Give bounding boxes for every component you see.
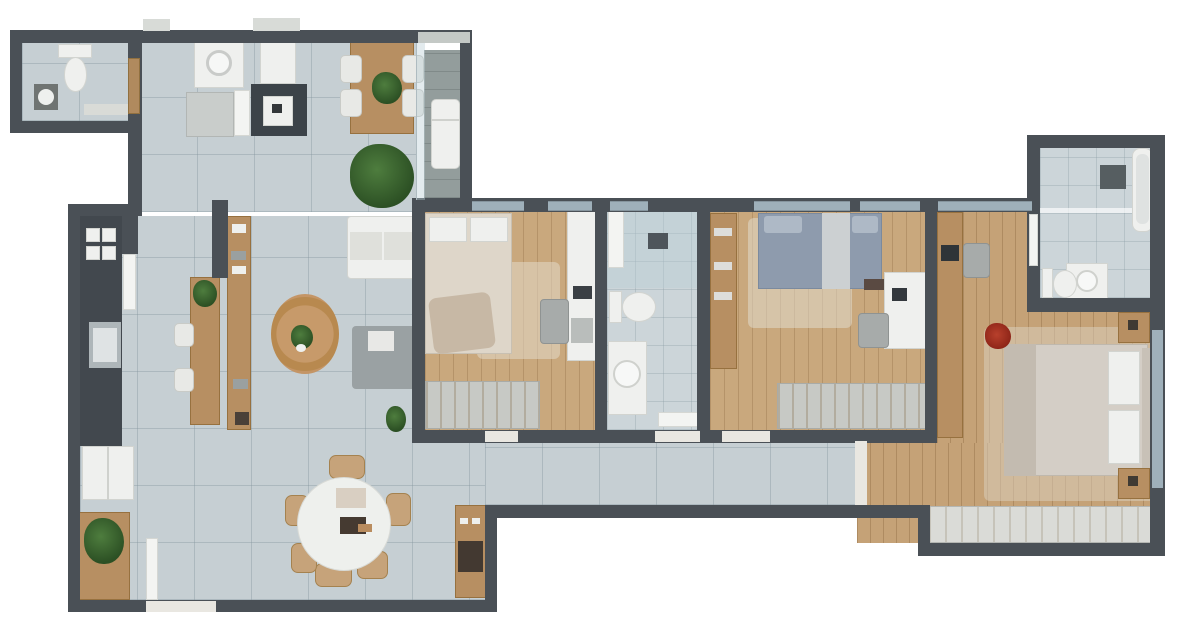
bar-plant	[193, 280, 217, 307]
bedroom2-desk	[884, 272, 928, 349]
wall-balcony-right	[460, 43, 472, 212]
master-wardrobe	[928, 506, 1158, 543]
shower-glass-door	[608, 210, 624, 268]
corridor-floor	[485, 443, 857, 505]
bathtub-basin	[1136, 154, 1149, 224]
master-bed-fold	[1004, 344, 1036, 476]
entry-threshold	[146, 601, 216, 612]
wall-bedroom2-master	[925, 212, 937, 443]
closet-shelf	[714, 262, 732, 270]
counter-item	[235, 412, 249, 425]
wall-dining-right	[485, 505, 497, 612]
espresso-machine	[458, 541, 483, 572]
lounge-throw	[368, 331, 394, 351]
counter-dish	[233, 379, 248, 389]
sideboard-plant	[84, 518, 124, 564]
bedroom2-chair	[858, 313, 889, 348]
bedroom2-pillow	[852, 216, 878, 233]
wall-corridor-bottom	[485, 505, 930, 518]
guest-bath-door-leaf	[128, 58, 140, 114]
kitchen-door-leaf	[123, 254, 136, 310]
service-appliance-dial	[272, 104, 282, 113]
closet-shelf	[714, 292, 732, 300]
wall-master-bottom	[918, 543, 1165, 556]
bar-stool	[174, 368, 194, 392]
dining-chair	[329, 455, 365, 479]
bedroom2-monitor	[892, 288, 907, 301]
ensuite-sink	[1076, 270, 1098, 292]
breakfast-chair	[340, 55, 362, 83]
window-master-right	[1152, 330, 1163, 488]
service-counter	[186, 92, 234, 137]
exterior-threshold	[143, 19, 170, 31]
dryer	[260, 42, 296, 84]
bedroom1-blanket	[428, 291, 496, 354]
nightstand-item	[1128, 320, 1138, 330]
ensuite-toilet-tank	[1042, 268, 1053, 298]
wall-kitchen-stub	[122, 216, 138, 254]
toilet-bowl	[64, 57, 87, 92]
sofa-cushion	[350, 232, 382, 260]
wall-bath-bottom	[10, 121, 140, 133]
red-flower-plant	[985, 323, 1011, 349]
nightstand-item	[1128, 476, 1138, 486]
toilet-bowl	[622, 292, 656, 322]
shower-head	[648, 233, 668, 249]
exterior-threshold	[253, 18, 300, 31]
wall-top-left-wing	[10, 30, 472, 43]
toilet-tank	[609, 291, 622, 323]
bathroom-door-leaf	[658, 412, 702, 427]
bathroom-door-threshold	[655, 431, 700, 442]
master-chair	[963, 243, 990, 278]
bedroom1-pillow	[429, 217, 467, 242]
wall-bottom	[68, 600, 497, 612]
washing-machine-door	[206, 50, 232, 76]
bedroom1-pillow	[470, 217, 508, 242]
window	[754, 201, 850, 211]
window	[938, 201, 1032, 211]
centerpiece-board	[358, 524, 372, 532]
cooktop-burner	[86, 228, 100, 242]
counter-dish	[232, 224, 246, 233]
counter-dish	[231, 251, 246, 260]
fridge-seam	[107, 446, 109, 500]
placemat	[336, 488, 366, 508]
window	[610, 201, 648, 211]
coffee-cup	[460, 518, 468, 524]
wall-living-bedroom1	[412, 212, 425, 437]
bar-stool	[174, 323, 194, 347]
master-floor-threshold	[855, 441, 867, 505]
bedroom1-laptop	[573, 286, 592, 299]
bedroom2-pillow	[764, 216, 802, 233]
bedroom1-desk-item	[571, 318, 593, 343]
closet-shelf	[714, 228, 732, 236]
bath-mat	[1100, 165, 1126, 189]
toilet-tank	[58, 44, 92, 58]
master-headboard	[1142, 348, 1150, 474]
lounger-hinge	[431, 119, 460, 121]
breakfast-chair	[340, 89, 362, 117]
bedroom1-door-threshold	[485, 431, 518, 442]
balcony-lounger	[431, 99, 460, 169]
bedroom2-closet	[710, 213, 737, 369]
cooktop-burner	[102, 228, 116, 242]
wall-kitchen-divider	[212, 200, 228, 278]
wall-ensuite-bottom	[1027, 298, 1152, 312]
wall-bath-left	[10, 30, 22, 133]
floor-plan	[0, 0, 1200, 636]
bedroom2-wardrobe	[777, 383, 933, 429]
master-pillow	[1108, 410, 1140, 464]
wall-ensuite-top	[1027, 135, 1165, 148]
entry-door-leaf	[146, 538, 158, 600]
wall-bath-bedroom2	[697, 212, 710, 437]
ensuite-door-leaf	[1029, 214, 1038, 266]
balcony-glass-partition	[416, 43, 425, 200]
balcony-parapet	[418, 32, 470, 43]
vanity-sink	[613, 360, 641, 388]
master-pillow	[1108, 351, 1140, 405]
wall-bedroom1-bath	[595, 212, 607, 437]
bath-shelf	[84, 104, 134, 115]
coffee-cup	[472, 518, 480, 524]
large-floor-plant	[350, 144, 414, 208]
table-plant	[372, 72, 402, 104]
bedroom2-door-threshold	[722, 431, 770, 442]
window	[548, 201, 592, 211]
counter-dish	[232, 266, 246, 274]
washbasin	[38, 89, 54, 105]
service-door-leaf	[234, 90, 250, 136]
ensuite-toilet-bowl	[1053, 270, 1077, 298]
window	[860, 201, 920, 211]
bedroom2-bed-runner	[822, 213, 850, 289]
cooktop-burner	[102, 246, 116, 260]
bedroom2-bench	[864, 279, 884, 290]
master-tv	[941, 245, 959, 261]
rug-plant-pot	[296, 344, 306, 352]
window	[472, 201, 524, 211]
bedroom1-wardrobe	[425, 381, 540, 429]
wall-left-outer	[68, 204, 80, 612]
long-counter	[227, 216, 251, 430]
bedroom1-chair	[540, 299, 569, 344]
kitchen-sink-basin	[93, 328, 117, 362]
cooktop-burner	[86, 246, 100, 260]
corner-plant	[386, 406, 406, 432]
